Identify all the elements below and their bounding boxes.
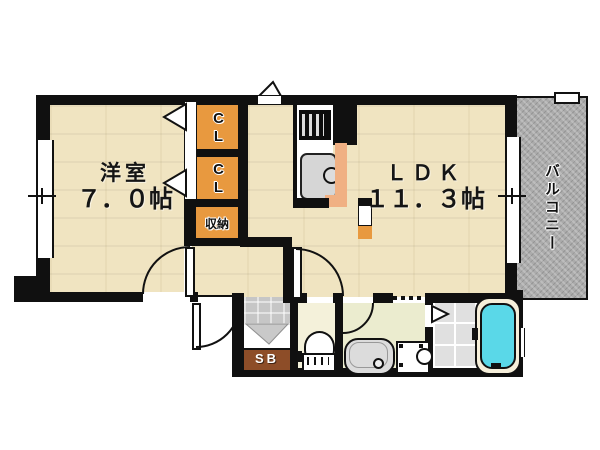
entrance-step-fan: [246, 324, 288, 344]
entrance-toilet-wall: [290, 303, 298, 377]
western-room-label: 洋室 ７．０帖: [40, 162, 210, 214]
entrance-left-wall: [232, 293, 244, 377]
balcony-top-marker: [554, 92, 580, 104]
wash-basin-drain: [373, 358, 384, 369]
western-room-bottom-wall: [14, 292, 143, 302]
washroom-top-wall: [373, 293, 393, 303]
toilet-tank-detail: [307, 357, 329, 365]
western-room-size: ７．０帖: [40, 186, 210, 214]
closet-1-label: CL: [207, 107, 227, 149]
western-room-door-leaf: [185, 247, 195, 297]
ldk-size: １１．３帖: [345, 186, 505, 214]
top-wall: [36, 95, 512, 105]
fridge-marker-base: [358, 226, 372, 239]
hall-ldk-wall: [283, 237, 292, 297]
right-wall-upper: [505, 95, 517, 137]
hallway-floor: [192, 245, 283, 297]
bathtub-drain-mark: [491, 363, 501, 368]
vent-triangle: [259, 82, 281, 96]
shoe-box-label: SB: [244, 351, 290, 366]
bathtub: [480, 303, 516, 369]
floor-plan: バルコニー CL CL 収納 SB: [0, 0, 600, 450]
kitchen-counter-left-edge: [293, 105, 297, 198]
toilet-paper-holder: [297, 351, 302, 362]
front-door-leaf: [192, 303, 201, 350]
kitchen-bottom-wall: [293, 198, 329, 208]
ldk-name: ＬＤＫ: [345, 162, 505, 186]
closet-2-label: CL: [207, 158, 227, 200]
left-wall-upper: [36, 95, 50, 140]
washer-pan-notch-tl: [399, 344, 403, 348]
washer-pan-drain: [416, 348, 433, 365]
washroom-bath-wall-upper: [425, 293, 433, 305]
bathtub-handle: [472, 328, 478, 340]
ldk-door-leaf: [292, 247, 302, 299]
front-door-threshold: [196, 295, 242, 297]
stove-burner-marks: [302, 114, 324, 136]
washer-pan-notch-bl: [399, 363, 403, 367]
storage-label: 収納: [196, 215, 238, 232]
balcony-label: バルコニー: [538, 128, 562, 288]
kitchen-pillar: [333, 95, 357, 145]
washroom-top-dashed: [393, 296, 425, 300]
right-window: [505, 137, 521, 263]
western-room-name: 洋室: [40, 162, 210, 186]
toilet-washroom-wall: [335, 293, 343, 377]
ldk-label: ＬＤＫ １１．３帖: [345, 162, 505, 214]
